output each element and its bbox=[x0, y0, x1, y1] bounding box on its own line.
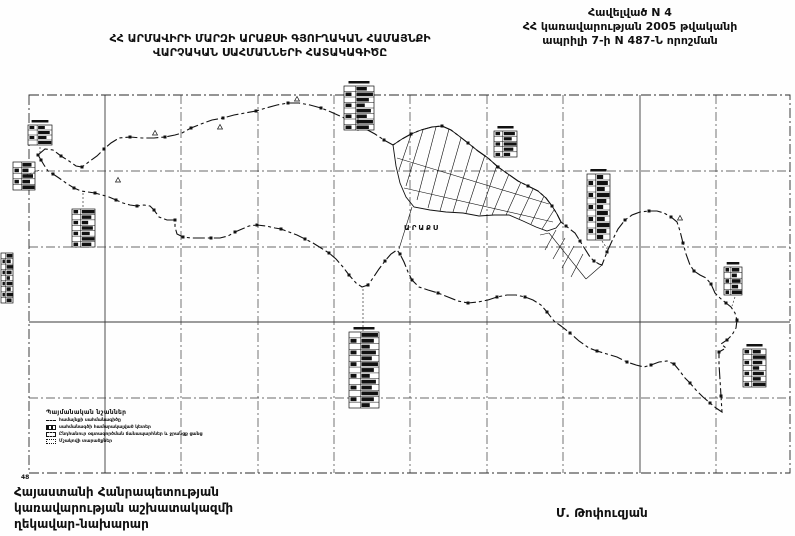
legend: Պայմանական նշաններ համայնքի սահմանագիծը … bbox=[46, 409, 221, 445]
boundary-line-symbol-icon bbox=[46, 418, 56, 423]
legend-item: Ընդհանուր օգտագործման ճանապարհներ և ջրան… bbox=[46, 431, 221, 438]
coordinate-tables bbox=[1, 81, 766, 408]
common-lands-symbol-icon bbox=[46, 432, 56, 437]
document-page: Հավելված N 4 ՀՀ կառավարության 2005 թվակա… bbox=[0, 0, 795, 536]
legend-item: սահմանագծի համարակալված կետեր bbox=[46, 424, 221, 431]
legend-header: Պայմանական նշաններ bbox=[46, 409, 221, 416]
legend-item-label: սահմանագծի համարակալված կետեր bbox=[59, 425, 151, 430]
legend-item-label: համայնքի սահմանագիծը bbox=[59, 418, 121, 423]
issuer-line-3: ղեկավար-նախարար bbox=[14, 516, 233, 532]
boundary-point-symbol-icon bbox=[46, 425, 56, 430]
legend-item-label: Մշակովի տարածքներ bbox=[59, 439, 112, 444]
issuer-line-1: Հայաստանի Հանրապետության bbox=[14, 484, 233, 500]
village-name-label: ԱՐԱՔՍ bbox=[404, 224, 440, 232]
boundary-point-markers bbox=[37, 97, 739, 405]
leader-lines bbox=[26, 118, 735, 332]
map-corner-label: 48 bbox=[21, 474, 29, 481]
legend-item: Մշակովի տարածքներ bbox=[46, 438, 221, 445]
legend-item-label: Ընդհանուր օգտագործման ճանապարհներ և ջրան… bbox=[59, 432, 202, 437]
issuer-line-2: կառավարության աշխատակազմի bbox=[14, 500, 233, 516]
issuer-block: Հայաստանի Հանրապետության կառավարության ա… bbox=[14, 484, 233, 532]
community-boundary bbox=[38, 103, 737, 412]
cultivated-symbol-icon bbox=[46, 439, 56, 444]
map-canvas bbox=[0, 0, 795, 536]
legend-item: համայնքի սահմանագիծը bbox=[46, 417, 221, 424]
signature-name: Մ. Թոփուզյան bbox=[556, 506, 648, 520]
